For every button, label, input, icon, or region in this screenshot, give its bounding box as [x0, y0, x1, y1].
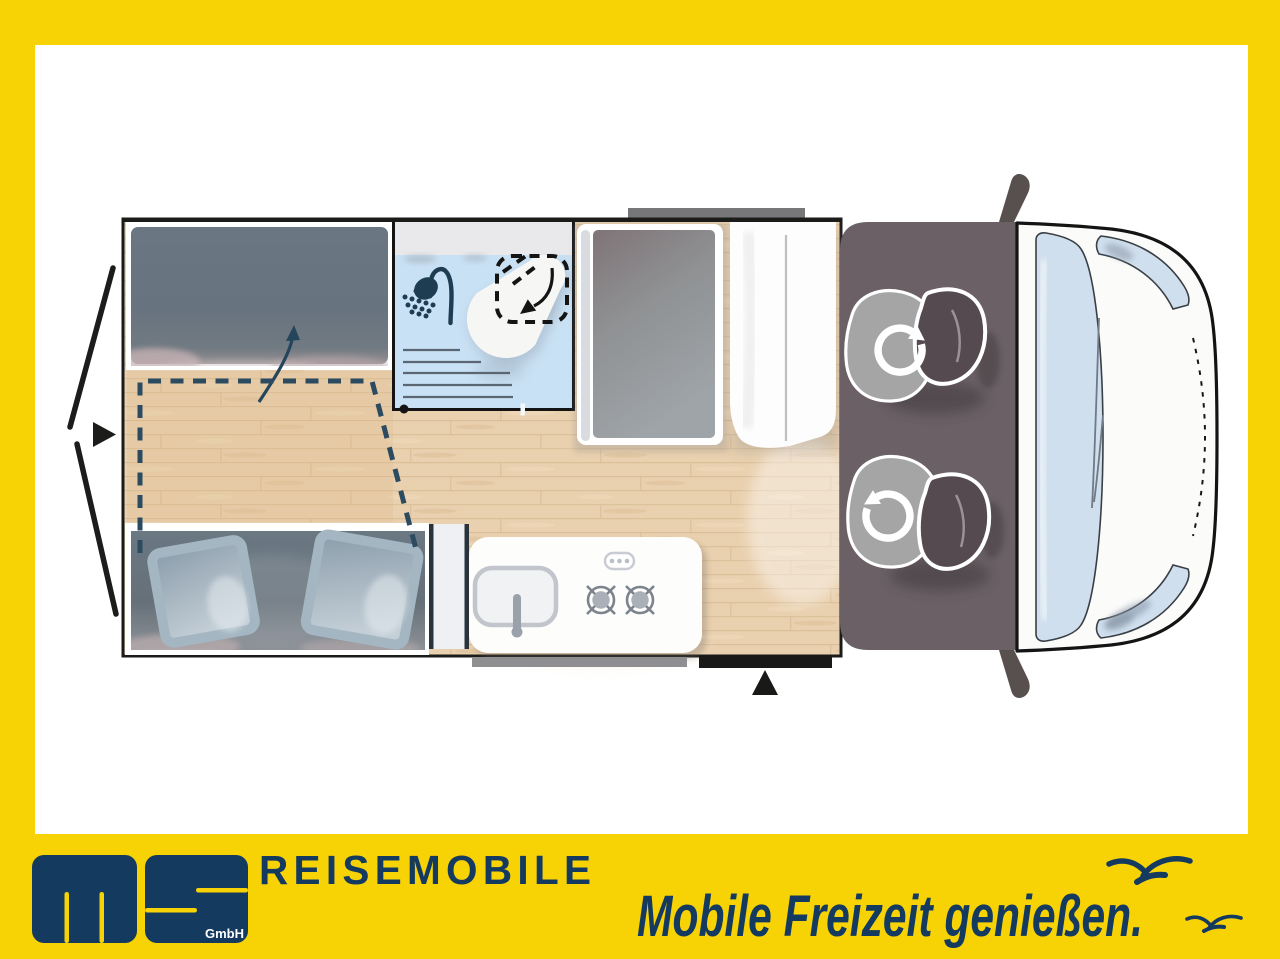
svg-text:Mobile Freizeit genießen.: Mobile Freizeit genießen.	[637, 884, 1143, 949]
svg-text:REISEMOBILE: REISEMOBILE	[259, 847, 591, 893]
svg-text:GmbH: GmbH	[205, 926, 244, 941]
